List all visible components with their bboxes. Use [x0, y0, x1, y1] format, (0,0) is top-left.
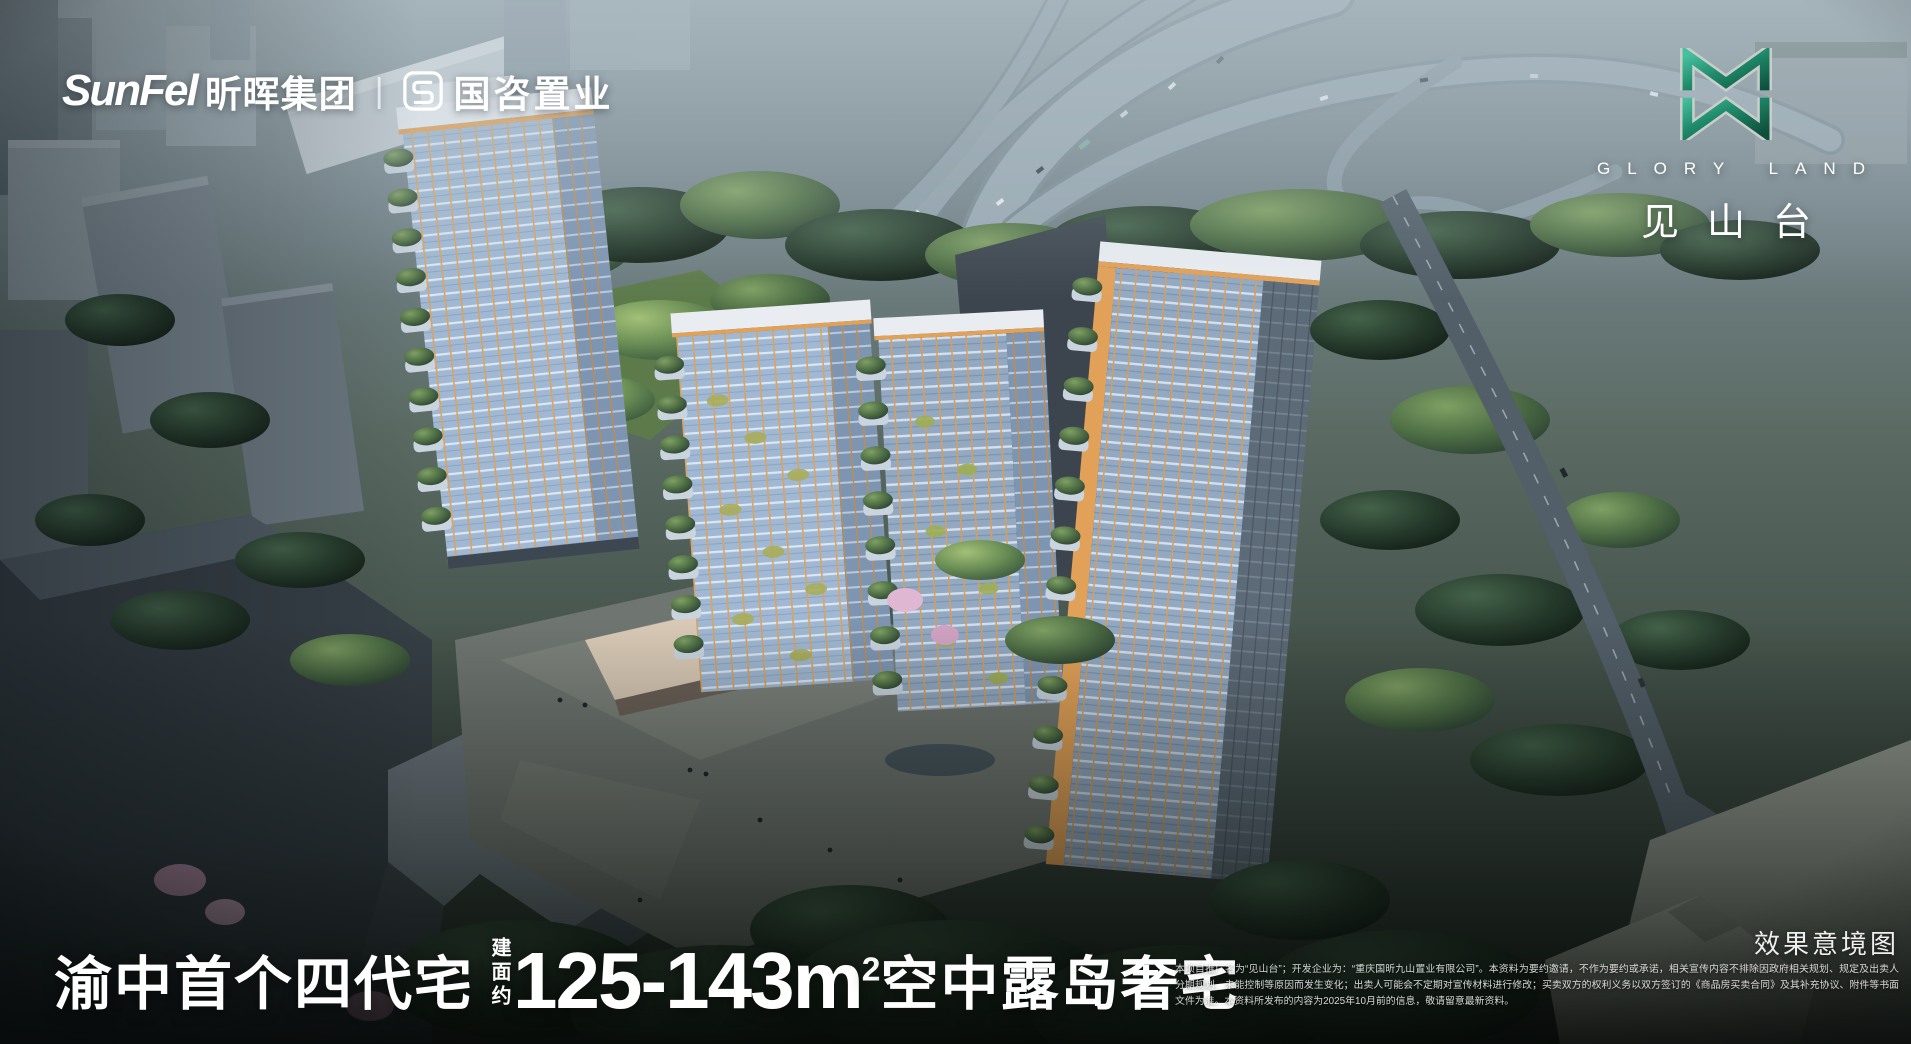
- poster: SunFel 昕晖集团 | 国咨置业: [0, 0, 1911, 1044]
- sunfel-logo-cn: 昕晖集团: [205, 64, 357, 118]
- render-watermark: 效果意境图: [1754, 924, 1899, 961]
- headline-range-value: 125-143m: [513, 936, 862, 1025]
- developer-logos: SunFel 昕晖集团 | 国咨置业: [62, 64, 614, 118]
- brand-cn-name: 见山台: [1580, 191, 1872, 246]
- glory-land-emblem-icon: [1673, 48, 1779, 140]
- brand-en-name: GLORY LAND: [1580, 159, 1872, 179]
- headline-area-range: 125-143m2: [513, 947, 880, 1014]
- headline-prefix: 渝中首个四代宅: [54, 956, 474, 1014]
- headline-sup: 2: [862, 951, 881, 988]
- headline-area-label: 建面约: [488, 937, 509, 1009]
- project-brand: GLORY LAND 见山台: [1580, 48, 1872, 246]
- headline: 渝中首个四代宅 建面约 125-143m2 空中露岛奢宅: [54, 937, 1240, 1014]
- legal-disclaimer: 本项目推广名为“见山台”；开发企业为：“重庆国昕九山置业有限公司”。本资料为要约…: [1175, 962, 1899, 1010]
- guozi-logo-cn: 国咨置业: [454, 64, 614, 118]
- sunfel-logo: SunFel: [62, 66, 197, 116]
- guozi-seal-icon: [402, 70, 444, 112]
- logo-divider: |: [375, 72, 384, 111]
